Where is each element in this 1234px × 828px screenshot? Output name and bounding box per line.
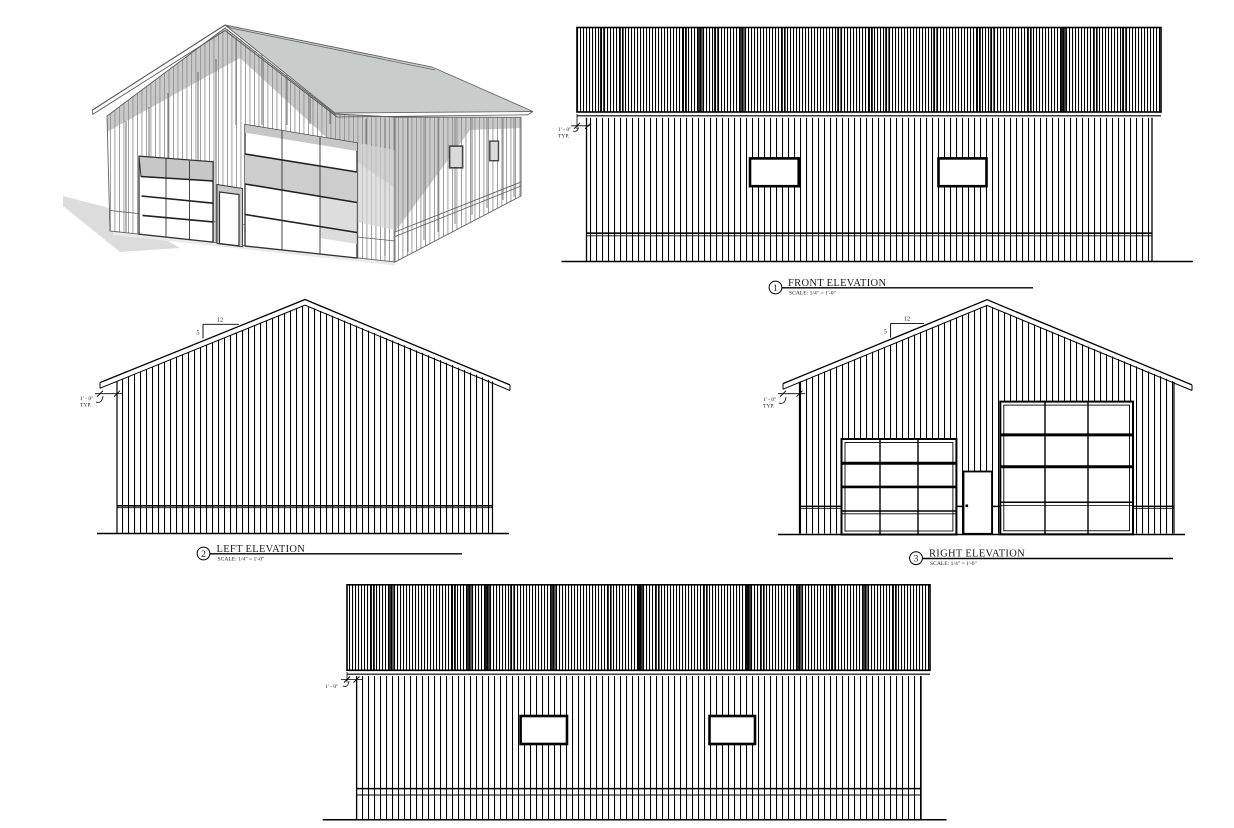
- svg-text:1: 1: [773, 284, 778, 294]
- svg-text:TYP.: TYP.: [80, 403, 92, 409]
- svg-text:SCALE: 1/4" = 1'-0": SCALE: 1/4" = 1'-0": [789, 291, 836, 297]
- svg-text:TYP.: TYP.: [763, 404, 775, 410]
- svg-text:SCALE: 1/4" = 1'-0": SCALE: 1/4" = 1'-0": [930, 561, 977, 567]
- svg-text:3: 3: [914, 555, 919, 565]
- svg-text:SCALE: 1/4" = 1'-0": SCALE: 1/4" = 1'-0": [218, 557, 265, 563]
- svg-text:12: 12: [904, 316, 910, 323]
- svg-text:TYP.: TYP.: [558, 134, 570, 140]
- svg-text:2: 2: [201, 550, 206, 560]
- svg-text:1' - 0": 1' - 0": [763, 397, 776, 403]
- svg-text:5: 5: [196, 330, 199, 337]
- svg-text:1' - 0": 1' - 0": [80, 396, 93, 402]
- svg-text:5: 5: [884, 329, 887, 336]
- svg-text:12: 12: [217, 317, 223, 324]
- svg-text:1' - 0": 1' - 0": [325, 684, 338, 690]
- svg-text:1' - 0": 1' - 0": [558, 127, 571, 133]
